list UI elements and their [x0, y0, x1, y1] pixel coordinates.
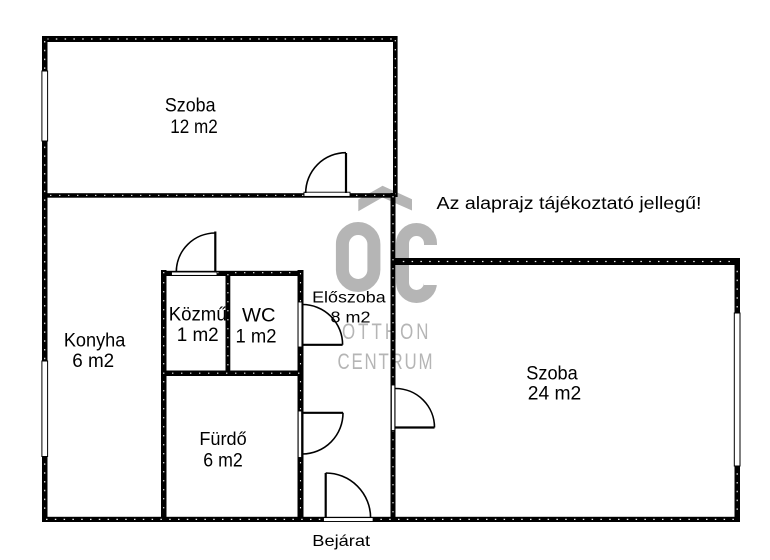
svg-text:Közmű: Közmű	[169, 304, 227, 325]
svg-text:CENTRUM: CENTRUM	[338, 350, 433, 375]
svg-text:8 m2: 8 m2	[331, 310, 371, 327]
svg-text:6 m2: 6 m2	[203, 451, 243, 472]
svg-text:Előszoba: Előszoba	[312, 289, 386, 306]
svg-text:Szoba: Szoba	[526, 364, 578, 385]
svg-text:1 m2: 1 m2	[236, 327, 277, 348]
svg-text:1 m2: 1 m2	[177, 325, 219, 346]
svg-text:6 m2: 6 m2	[72, 351, 114, 372]
svg-text:WC: WC	[242, 306, 276, 327]
svg-text:Konyha: Konyha	[64, 330, 126, 351]
svg-text:Szoba: Szoba	[165, 96, 216, 117]
svg-text:Az alaprajz tájékoztató jelleg: Az alaprajz tájékoztató jellegű!	[437, 193, 702, 213]
svg-text:Fürdő: Fürdő	[199, 429, 246, 449]
svg-text:Bejárat: Bejárat	[312, 533, 370, 550]
svg-text:12 m2: 12 m2	[170, 117, 218, 138]
svg-text:24 m2: 24 m2	[528, 384, 582, 405]
